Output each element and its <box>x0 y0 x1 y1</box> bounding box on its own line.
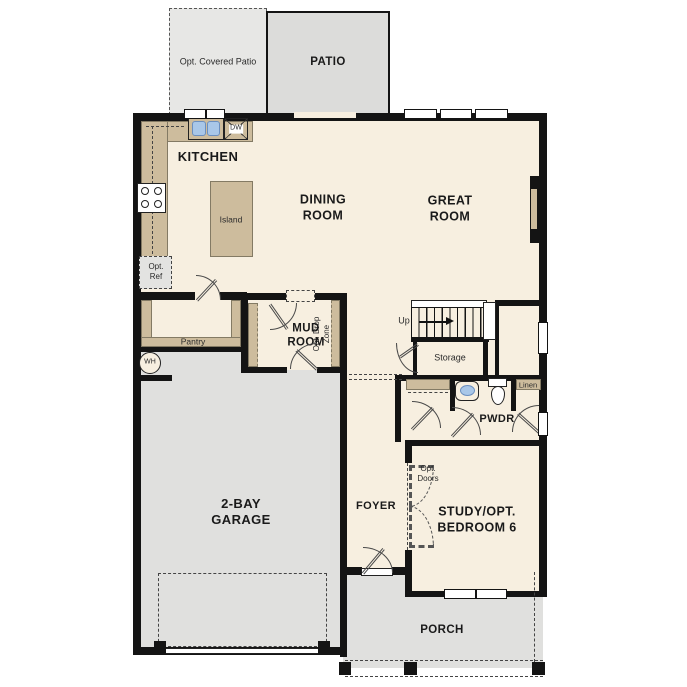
wall <box>343 567 362 575</box>
porch-post <box>532 662 545 675</box>
window <box>538 322 548 354</box>
floor-plan: DW Opt. Ref Island Pantry WH Opt. Drop Z… <box>0 0 687 687</box>
fireplace-insert <box>531 189 537 229</box>
window <box>538 412 548 436</box>
garage-door-jamb <box>154 641 166 655</box>
opt-ref-label: Opt. Ref <box>148 262 163 282</box>
wall <box>405 591 447 597</box>
sink-basin <box>207 121 220 136</box>
wall <box>241 293 248 373</box>
patio-label: PATIO <box>310 55 345 69</box>
garage-label: 2-BAY GARAGE <box>211 496 270 529</box>
wall <box>495 300 547 306</box>
wall <box>539 113 547 597</box>
wall <box>392 567 407 575</box>
wall <box>141 292 195 300</box>
porch-edge-dash <box>345 676 543 677</box>
great-room-label: GREAT ROOM <box>428 193 473 224</box>
burner <box>141 187 149 195</box>
porch-edge-dash <box>534 572 535 662</box>
up-label: Up <box>398 315 410 326</box>
sink-basin <box>192 121 206 136</box>
window <box>184 109 206 119</box>
wall <box>483 340 488 377</box>
porch-post <box>404 662 417 675</box>
island-label: Island <box>220 215 243 226</box>
burner <box>141 200 149 208</box>
wall <box>405 440 412 463</box>
linen-label: Linen <box>519 380 537 389</box>
pantry-label: Pantry <box>181 337 206 348</box>
cabinet-dash-line <box>146 126 184 127</box>
wall <box>141 347 248 352</box>
burner <box>154 187 162 195</box>
wall <box>505 591 547 597</box>
wall <box>405 440 547 446</box>
kitchen-label: KITCHEN <box>178 149 239 165</box>
closet-rod-dash <box>408 392 448 393</box>
study-label: STUDY/OPT. BEDROOM 6 <box>437 504 516 535</box>
window <box>206 109 225 119</box>
up-arrow <box>419 321 446 323</box>
pwdr-label: PWDR <box>479 413 514 427</box>
hall-opening-dash <box>349 379 402 380</box>
wall <box>133 375 172 381</box>
dining-room-label: DINING ROOM <box>300 192 346 223</box>
pantry-shelf <box>141 300 152 338</box>
mudroom-bench <box>248 303 258 367</box>
wall <box>395 375 401 442</box>
water-heater-label: WH <box>144 359 156 368</box>
foyer-label: FOYER <box>356 500 396 514</box>
opt-doors-opening <box>407 463 408 550</box>
hall-foyer-floor <box>347 420 407 570</box>
window <box>440 109 472 119</box>
stair-landing-side <box>483 302 496 340</box>
garage-door <box>165 648 320 654</box>
storage-label: Storage <box>434 352 466 363</box>
garage-parking-pad <box>158 573 327 647</box>
pwdr-sink-basin <box>460 385 475 396</box>
pantry-shelf <box>231 300 241 338</box>
patio-door-opening <box>294 112 356 118</box>
coat-closet-shelf <box>406 379 450 390</box>
up-arrow-head <box>446 317 454 325</box>
window <box>404 109 437 119</box>
porch-edge-dash <box>345 660 543 661</box>
burner <box>154 200 162 208</box>
porch-label: PORCH <box>420 623 464 637</box>
opt-doors-label: Opt. Doors <box>417 464 438 484</box>
garage-door-jamb <box>318 641 330 655</box>
dishwasher-label: DW <box>229 125 243 134</box>
window-mullion <box>475 589 477 599</box>
wall <box>340 293 347 657</box>
drop-zone-counter <box>331 300 340 367</box>
porch-post <box>339 662 351 675</box>
mudroom-cased-opening <box>286 290 315 302</box>
hall-opening-dash <box>349 374 402 375</box>
window <box>475 109 508 119</box>
wall <box>245 367 287 373</box>
covered-patio-label: Opt. Covered Patio <box>180 56 257 67</box>
